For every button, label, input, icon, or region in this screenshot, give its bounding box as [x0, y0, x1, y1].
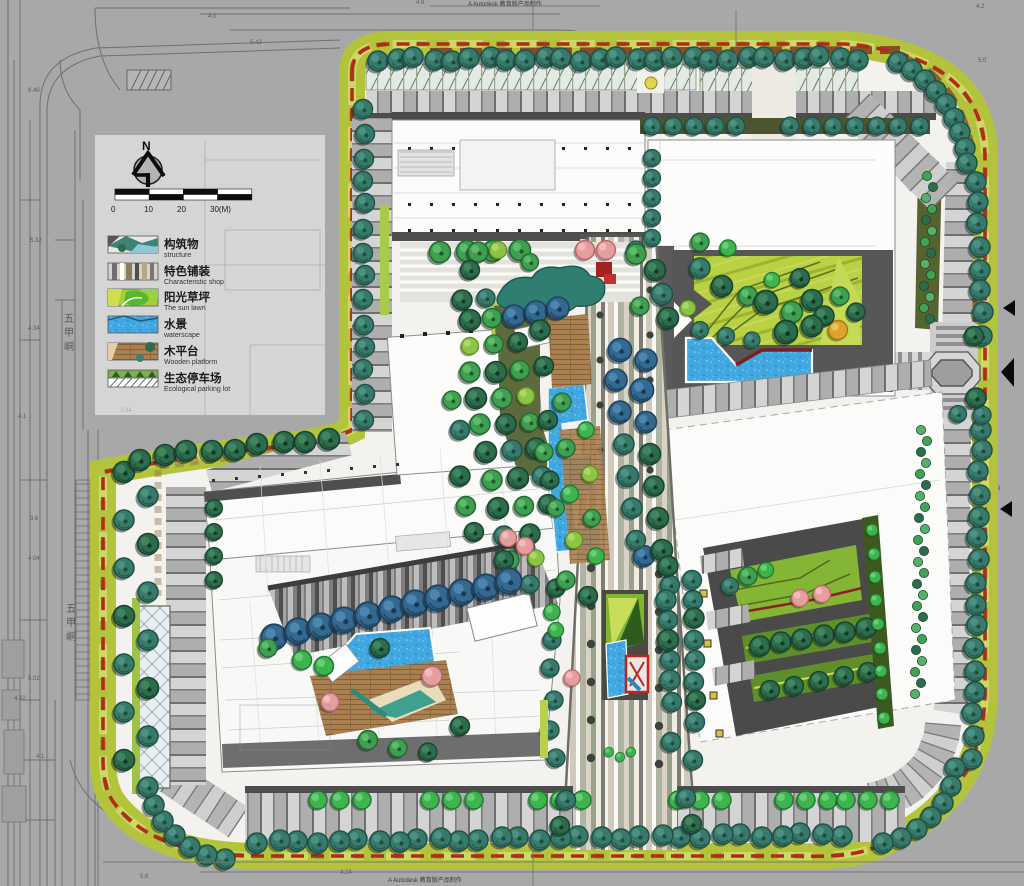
svg-text:甲: 甲 [66, 618, 76, 629]
svg-text:水景: 水景 [164, 317, 187, 331]
svg-text:木平台: 木平台 [163, 344, 199, 358]
svg-text:10: 10 [144, 205, 153, 214]
svg-text:Wooden platform: Wooden platform [164, 359, 217, 366]
svg-text:4.2: 4.2 [976, 4, 985, 10]
svg-text:构筑物: 构筑物 [164, 237, 199, 251]
svg-text:20: 20 [177, 205, 186, 214]
svg-text:6.40: 6.40 [28, 88, 40, 94]
svg-text:5.42: 5.42 [250, 40, 262, 46]
svg-text:0: 0 [111, 205, 116, 214]
svg-text:A Autodesk 教育版产品制作: A Autodesk 教育版产品制作 [468, 0, 542, 8]
svg-text:A Autodesk 教育版产品制作: A Autodesk 教育版产品制作 [388, 876, 462, 884]
svg-text:甲: 甲 [64, 328, 74, 339]
svg-text:4.34: 4.34 [28, 326, 40, 332]
svg-text:5.8: 5.8 [140, 874, 149, 880]
svg-text:4.8: 4.8 [416, 0, 425, 6]
svg-text:Ecological parking lot: Ecological parking lot [164, 386, 230, 393]
svg-text:五: 五 [66, 604, 76, 615]
svg-text:Characteristic shop: Characteristic shop [164, 279, 224, 286]
svg-text:The sun lawn: The sun lawn [164, 305, 206, 312]
svg-text:4.0: 4.0 [208, 14, 217, 20]
svg-text:4.1: 4.1 [18, 414, 27, 420]
svg-text:5.02: 5.02 [28, 676, 40, 682]
svg-text:五: 五 [64, 314, 74, 325]
svg-text:4.34: 4.34 [340, 870, 352, 876]
svg-text:waterscape: waterscape [163, 332, 200, 339]
svg-text:N: N [142, 139, 151, 153]
svg-text:峒: 峒 [64, 341, 74, 353]
svg-text:5.0: 5.0 [978, 58, 987, 64]
svg-text:structure: structure [164, 252, 191, 259]
svg-text:4.1: 4.1 [36, 754, 45, 760]
svg-text:3.6: 3.6 [30, 516, 39, 522]
svg-text:特色铺装: 特色铺装 [164, 264, 210, 278]
svg-text:4.62: 4.62 [14, 696, 26, 702]
svg-text:5.32: 5.32 [30, 238, 42, 244]
svg-text:峒: 峒 [66, 631, 76, 643]
svg-text:4.04: 4.04 [28, 556, 40, 562]
svg-text:生态停车场: 生态停车场 [164, 371, 222, 385]
svg-text:30(M): 30(M) [210, 205, 231, 214]
svg-text:阳光草坪: 阳光草坪 [164, 290, 210, 304]
